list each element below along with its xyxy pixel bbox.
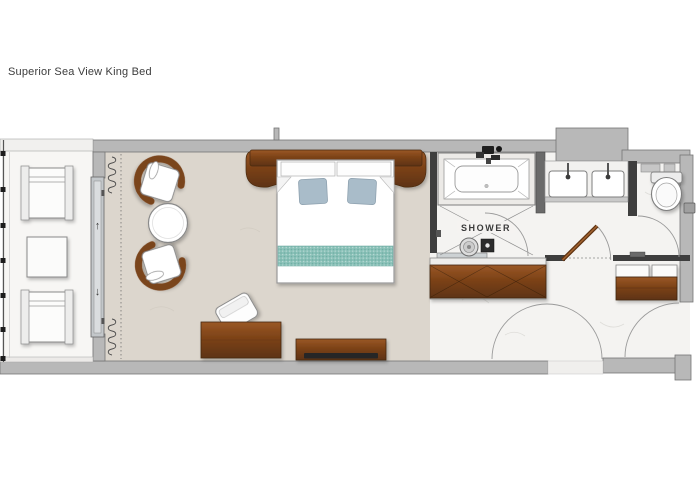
wall-under-wc	[613, 255, 690, 261]
wall-bottom-left	[0, 361, 548, 374]
wc-door-leaf	[630, 252, 645, 257]
entry-threshold	[548, 361, 603, 374]
minibar-cabinet	[616, 265, 677, 300]
vanity	[545, 161, 628, 202]
slider-up-arrow-icon: ↑	[95, 220, 101, 232]
shelf	[652, 265, 677, 277]
door-handle-icon	[102, 318, 105, 324]
wall-tub-pillar	[536, 152, 545, 213]
bed-head-panel	[281, 162, 335, 176]
shower-floor-box-icon	[481, 239, 494, 252]
sliding-door: ↑ ↓	[91, 177, 105, 337]
desk	[201, 322, 281, 358]
lounge-chair-1	[21, 166, 73, 220]
wall-slider-stub-bottom	[93, 334, 105, 361]
shower-drain-icon	[460, 238, 478, 256]
wall-niche	[684, 203, 695, 213]
cistern	[664, 164, 675, 172]
shower-label: SHOWER	[461, 223, 511, 233]
wardrobe	[430, 258, 546, 299]
floor-plan-page: Superior Sea View King Bed	[0, 0, 700, 500]
shower-control-icon	[436, 230, 441, 237]
bed-pillow	[298, 178, 327, 204]
cistern	[641, 164, 660, 172]
wall-vanity-wc	[628, 161, 637, 216]
wall-stub-top	[274, 128, 279, 140]
wall-bathroom-left	[430, 152, 437, 253]
floor-plan: ↑ ↓	[0, 0, 700, 500]
balcony-top-edge	[0, 139, 93, 151]
shower-glass-panel	[437, 253, 487, 258]
balcony-bottom-edge	[0, 357, 93, 362]
wall-top-right-block	[556, 128, 628, 161]
wall-slider-stub-top	[93, 152, 105, 178]
wall-bottom-right	[603, 358, 678, 373]
bed-pillow	[347, 178, 376, 204]
door-handle-icon	[102, 190, 105, 196]
lounge-chair-2	[21, 290, 73, 344]
balcony-side-table	[27, 237, 67, 277]
wall-bottom-cap	[675, 355, 691, 380]
round-table	[149, 204, 188, 243]
tv-screen	[304, 353, 378, 359]
bed-runner	[278, 246, 393, 266]
bed-head-panel	[337, 162, 391, 176]
slider-down-arrow-icon: ↓	[95, 286, 101, 298]
shelf	[616, 265, 649, 277]
tv-console	[296, 339, 386, 360]
toilet	[651, 172, 682, 211]
